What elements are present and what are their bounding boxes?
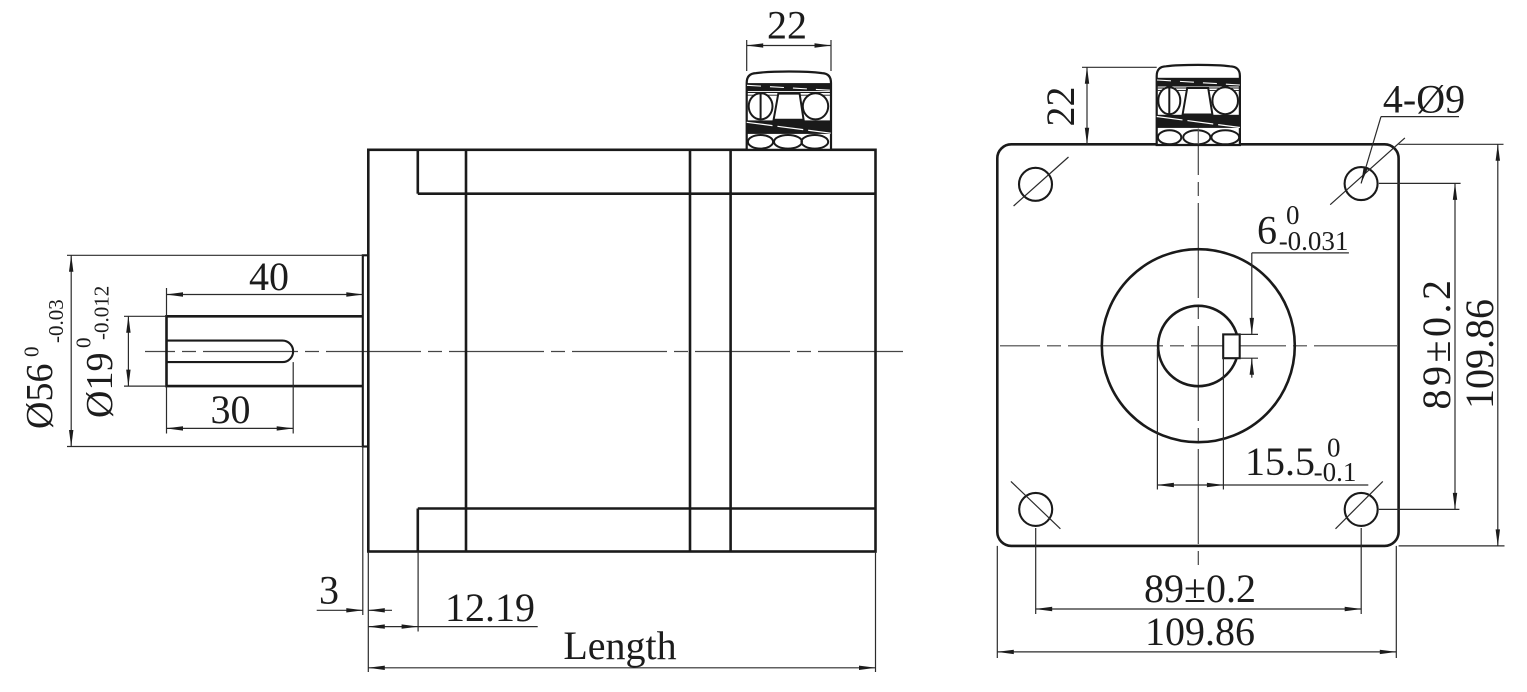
svg-text:-0.1: -0.1 [1314, 457, 1357, 487]
svg-text:30: 30 [211, 387, 251, 432]
svg-text:Ø19: Ø19 [79, 353, 121, 418]
svg-text:Ø56: Ø56 [19, 364, 61, 429]
svg-text:109.86: 109.86 [1457, 299, 1502, 409]
svg-text:89±0.2: 89±0.2 [1144, 566, 1256, 611]
svg-text:22: 22 [767, 3, 807, 48]
svg-text:12.19: 12.19 [445, 585, 535, 630]
svg-text:-0.031: -0.031 [1279, 226, 1349, 256]
svg-text:-0.012: -0.012 [90, 286, 114, 340]
svg-text:40: 40 [249, 254, 289, 299]
svg-text:4-Ø9: 4-Ø9 [1383, 77, 1465, 122]
svg-text:Length: Length [563, 623, 676, 668]
svg-text:109.86: 109.86 [1145, 609, 1255, 654]
svg-text:15.5: 15.5 [1245, 439, 1315, 484]
svg-text:6: 6 [1257, 208, 1277, 253]
svg-text:22: 22 [1038, 87, 1083, 127]
svg-text:0: 0 [20, 347, 44, 358]
svg-text:89±0.2: 89±0.2 [1414, 277, 1459, 410]
svg-text:3: 3 [319, 568, 339, 613]
svg-text:-0.03: -0.03 [44, 299, 68, 343]
